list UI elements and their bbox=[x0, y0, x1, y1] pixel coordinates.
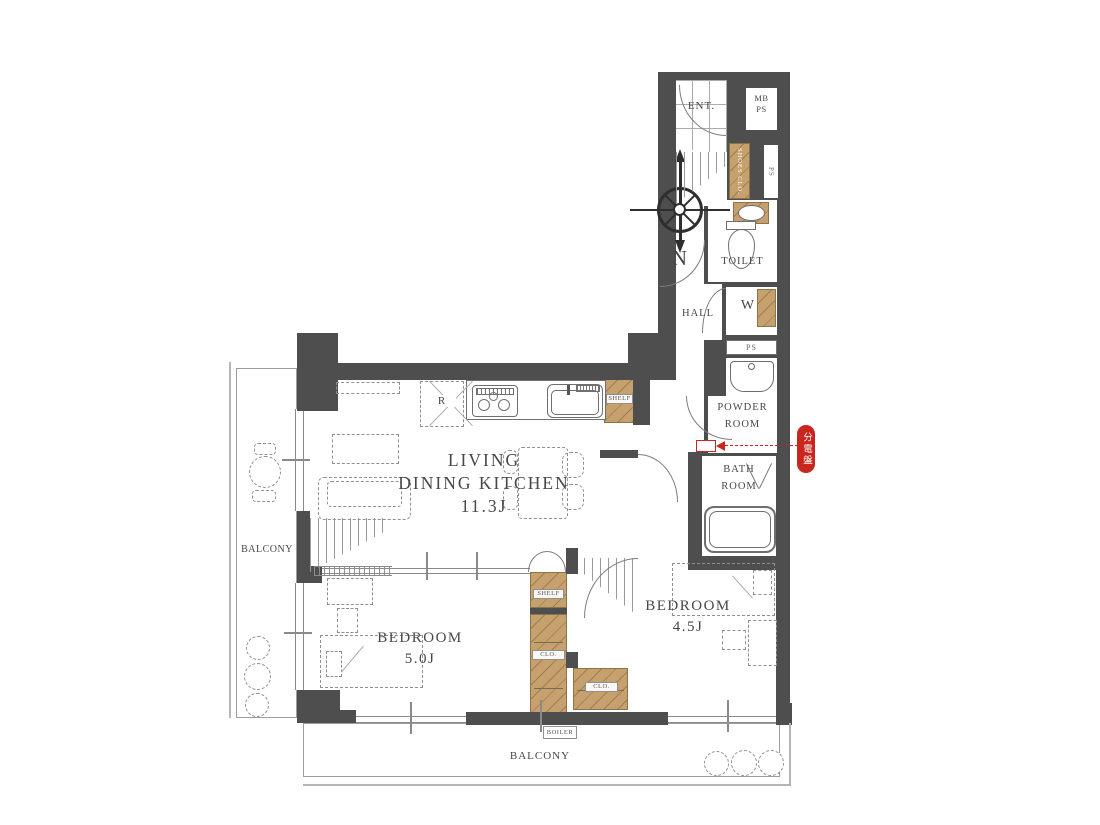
wall-bottom-mid bbox=[466, 712, 668, 725]
compass-hub bbox=[673, 203, 686, 216]
wall-cabinet-dashed bbox=[336, 382, 400, 394]
tick bbox=[727, 700, 729, 732]
balcony-chair bbox=[254, 443, 276, 455]
bedroom-second-label-line1: BEDROOM bbox=[598, 598, 778, 615]
wall-closet-stub-mid bbox=[566, 652, 578, 668]
wall-kitchen-end bbox=[633, 380, 650, 425]
bedroom-main-label-line2: 5.0J bbox=[330, 651, 510, 668]
balcony-chair bbox=[252, 490, 276, 502]
ldk-label-line2: DINING KITCHEN bbox=[364, 473, 604, 494]
mb-ps-label-line2: PS bbox=[746, 104, 777, 114]
tick bbox=[282, 459, 310, 461]
powder-faucet bbox=[748, 363, 755, 370]
tick bbox=[410, 702, 412, 734]
bedroom-main-label-line1: BEDROOM bbox=[330, 630, 510, 647]
balcony-table bbox=[249, 456, 281, 488]
wall-bath-left bbox=[688, 452, 702, 570]
wall-closet-stub-top bbox=[566, 548, 578, 574]
closet-rod bbox=[534, 642, 563, 643]
window-bottom-right bbox=[668, 716, 778, 723]
center-closet-chip: CLO. bbox=[532, 650, 565, 660]
bath-label-line2: ROOM bbox=[702, 481, 776, 492]
ps-top-label: PS bbox=[764, 148, 778, 196]
plant bbox=[244, 663, 271, 690]
wall-corner-topleft bbox=[297, 333, 338, 411]
second-closet-chip: CLO. bbox=[585, 682, 618, 692]
hall-label: HALL bbox=[672, 308, 724, 319]
tick bbox=[540, 700, 542, 732]
ldk-label-line1: LIVING bbox=[364, 450, 604, 471]
plant bbox=[245, 693, 269, 717]
floor-plan: N bbox=[0, 0, 1100, 825]
closet-rod bbox=[534, 688, 563, 689]
balcony-left-outer-line bbox=[229, 362, 231, 718]
distribution-board-leader bbox=[725, 445, 798, 446]
boiler-box: BOILER bbox=[543, 726, 577, 739]
stove-burner bbox=[498, 399, 510, 411]
toilet-label: TOILET bbox=[705, 256, 780, 267]
wall-ldk-stub bbox=[600, 450, 638, 458]
distribution-board-tag: 分電盤 bbox=[797, 425, 815, 473]
tick bbox=[284, 632, 312, 634]
wall-right-bedroom bbox=[776, 556, 790, 706]
ldk-door-arc bbox=[638, 454, 678, 502]
wall-junction-block bbox=[628, 333, 674, 380]
bed-second-pillow bbox=[753, 570, 772, 595]
stove-burner bbox=[478, 399, 490, 411]
washer-label: W bbox=[726, 298, 770, 314]
sink-drain-grid bbox=[576, 385, 600, 392]
distribution-board-box bbox=[696, 440, 716, 452]
balcony-bottom-label: BALCONY bbox=[490, 750, 590, 762]
balcony-left-label: BALCONY bbox=[236, 544, 298, 555]
bedroom-second-label-line2: 4.5J bbox=[598, 619, 778, 636]
center-shelf-chip: SHELF bbox=[533, 589, 564, 599]
kitchen-sink-basin bbox=[551, 390, 599, 415]
wall-corner-bottomright bbox=[776, 703, 792, 725]
desk-main bbox=[327, 578, 373, 605]
balcony-right-outer-line bbox=[789, 723, 791, 785]
window-bedroom-left bbox=[295, 583, 304, 690]
plant bbox=[704, 751, 729, 776]
balcony-bottom-outer-line bbox=[303, 784, 791, 786]
shoes-closet-label: SHOES CLO. bbox=[729, 145, 750, 198]
wall-top bbox=[297, 363, 668, 380]
wall-shelf-divider bbox=[530, 608, 567, 614]
bathtub-inner bbox=[709, 511, 771, 548]
wall-bottom-step bbox=[340, 710, 356, 723]
tick bbox=[426, 552, 428, 580]
stove-burner bbox=[489, 392, 498, 401]
compass-north-label: N bbox=[668, 246, 692, 271]
plant bbox=[246, 636, 270, 660]
powder-label-line1: POWDER bbox=[706, 402, 779, 413]
sliding-door-rail bbox=[314, 566, 392, 576]
faucet bbox=[567, 385, 570, 395]
plant bbox=[758, 750, 784, 776]
kitchen-shelf-chip: SHELF bbox=[606, 394, 633, 404]
fridge-label: R bbox=[428, 395, 456, 407]
powder-label-line2: ROOM bbox=[706, 419, 779, 430]
center-closet bbox=[530, 614, 567, 713]
mb-ps-label-line1: MB bbox=[746, 93, 777, 103]
tick bbox=[476, 552, 478, 580]
entrance-label: ENT. bbox=[676, 100, 727, 112]
wall-corner-bottomleft bbox=[297, 690, 340, 723]
ps-mid-label: PS bbox=[726, 343, 777, 352]
plant bbox=[731, 750, 757, 776]
bath-label-line1: BATH bbox=[702, 464, 776, 475]
distribution-board-arrow bbox=[716, 441, 725, 451]
entry-sink-basin bbox=[738, 205, 765, 221]
ldk-label-line3: 11.3J bbox=[364, 496, 604, 517]
